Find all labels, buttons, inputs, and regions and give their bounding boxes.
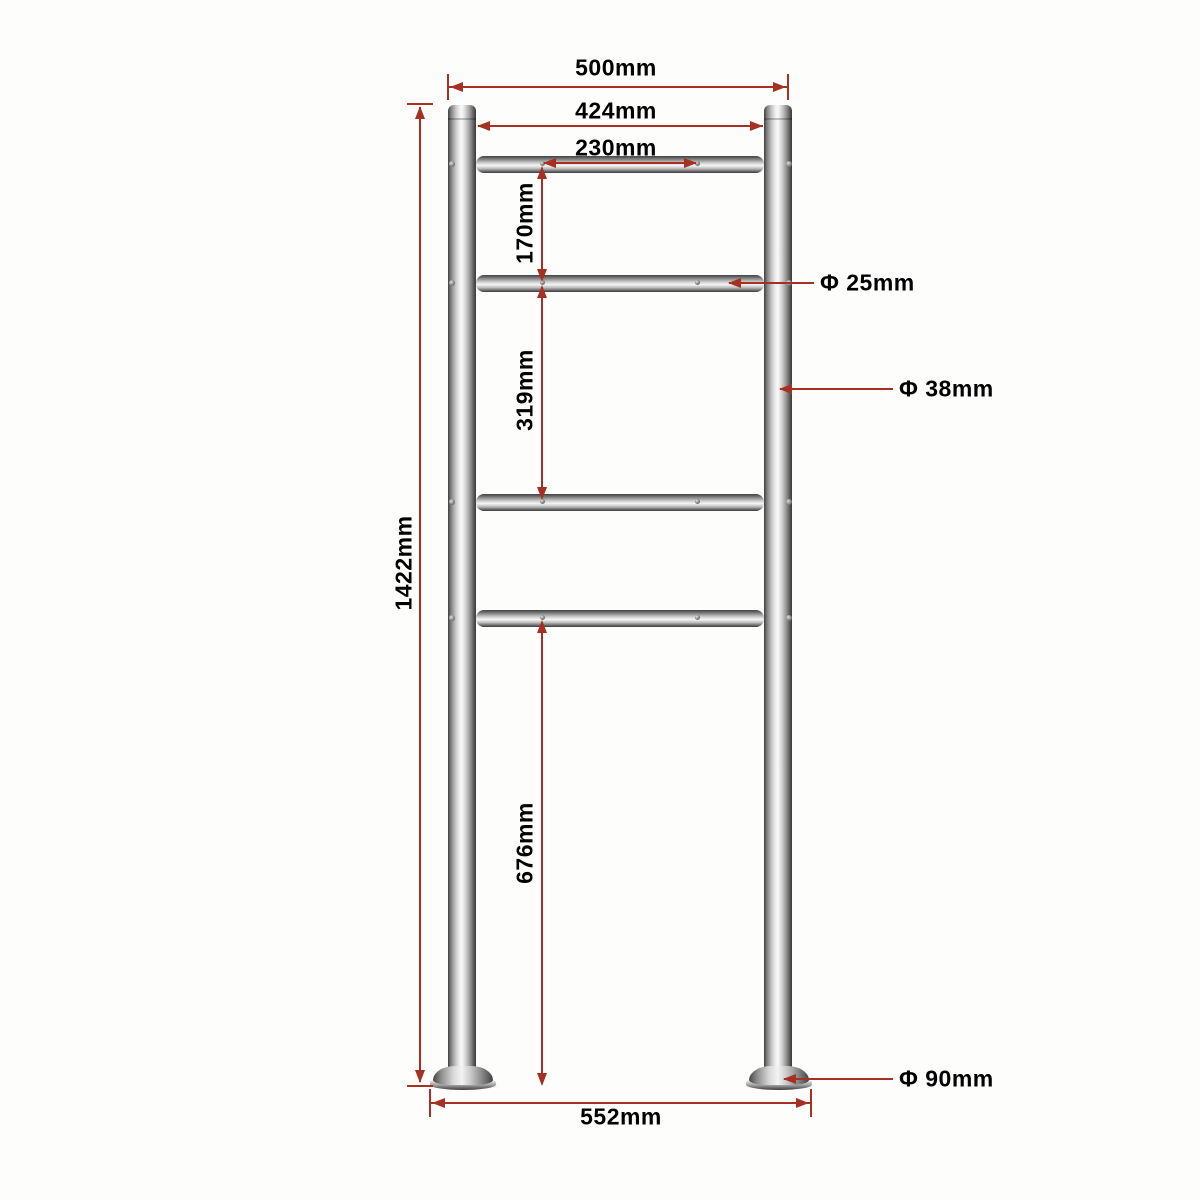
arrowhead-down-icon — [415, 1070, 425, 1083]
arrowhead-left-icon — [779, 384, 792, 394]
arrowhead-up-icon — [415, 106, 425, 119]
dim-label-base-span: 552mm — [580, 1104, 662, 1131]
dim-line — [541, 168, 543, 280]
dim-line — [419, 107, 421, 1082]
dim-line — [784, 1078, 893, 1080]
post-screw — [786, 499, 792, 505]
left-post — [448, 105, 476, 1072]
post-screw — [449, 280, 455, 286]
arrowhead-down-icon — [537, 1073, 547, 1086]
post-screw — [786, 615, 792, 621]
dim-label-middle-gap: 319mm — [512, 349, 539, 431]
left-foot-flange — [433, 1066, 493, 1085]
right-post — [764, 105, 792, 1072]
dim-label-top-width: 500mm — [575, 55, 657, 82]
crossbar-2 — [476, 275, 764, 292]
arrowhead-left-icon — [477, 121, 490, 131]
post-screw — [449, 615, 455, 621]
dim-label-base-plate-diameter: Φ 90mm — [899, 1066, 994, 1093]
dim-line — [541, 622, 543, 1084]
arrowhead-left-icon — [450, 82, 463, 92]
arrowhead-left-icon — [783, 1074, 796, 1084]
mounting-hole — [695, 499, 700, 504]
arrowhead-down-icon — [537, 269, 547, 282]
post-screw — [786, 161, 792, 167]
dim-label-lower-height: 676mm — [512, 802, 539, 884]
dim-tick — [407, 103, 433, 105]
crossbar-4 — [476, 610, 764, 627]
arrowhead-left-icon — [728, 278, 741, 288]
dim-line — [544, 162, 696, 164]
right-foot-flange — [749, 1066, 809, 1085]
arrowhead-up-icon — [537, 285, 547, 298]
post-screw — [449, 161, 455, 167]
dim-label-crossbar-diameter: Φ 25mm — [820, 270, 915, 297]
dim-label-total-height: 1422mm — [391, 515, 418, 610]
dim-label-inner-width: 424mm — [575, 98, 657, 125]
dimension-diagram: 500mm 424mm 230mm 170mm 319mm 676mm — [0, 0, 1200, 1200]
arrowhead-right-icon — [796, 1098, 809, 1108]
arrowhead-up-icon — [537, 620, 547, 633]
dim-tick — [810, 1089, 812, 1117]
dim-line — [478, 125, 763, 127]
arrowhead-right-icon — [773, 82, 786, 92]
dim-tick — [407, 1085, 433, 1087]
mounting-hole — [695, 615, 700, 620]
arrowhead-down-icon — [537, 487, 547, 500]
arrowhead-right-icon — [750, 121, 763, 131]
arrowhead-right-icon — [684, 158, 697, 168]
dim-line — [780, 388, 893, 390]
mounting-hole — [695, 280, 700, 285]
dim-tick — [787, 74, 789, 100]
dim-line — [541, 287, 543, 498]
arrowhead-left-icon — [432, 1098, 445, 1108]
dim-line — [449, 86, 787, 88]
dim-label-hole-spacing: 230mm — [575, 135, 657, 162]
arrowhead-up-icon — [537, 166, 547, 179]
dim-label-upper-gap: 170mm — [512, 182, 539, 264]
crossbar-3 — [476, 494, 764, 511]
post-screw — [449, 499, 455, 505]
dim-line — [729, 282, 814, 284]
dim-label-post-diameter: Φ 38mm — [899, 376, 994, 403]
